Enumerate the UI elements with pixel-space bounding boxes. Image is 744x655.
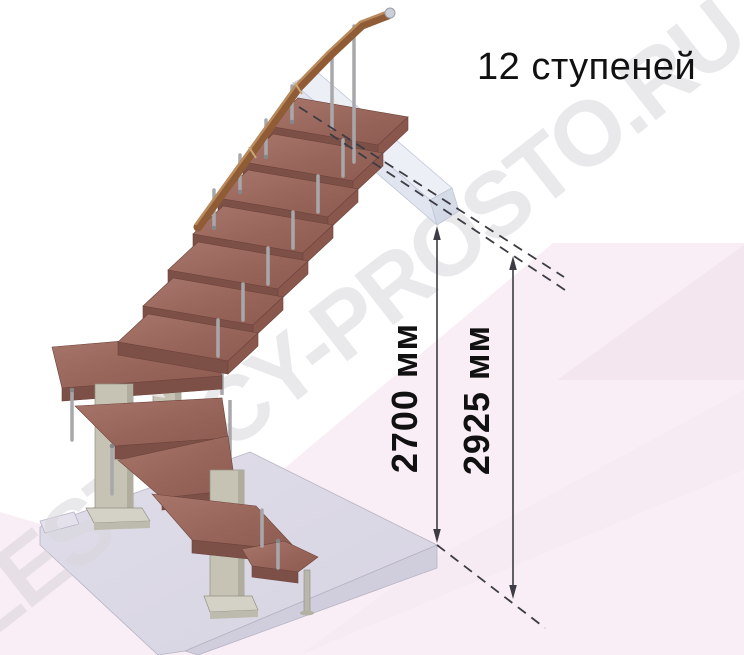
staircase-diagram-page: LESTNICY-PROSTO.RU xyxy=(0,0,744,655)
steps-count-label: 12 ступеней xyxy=(477,45,696,89)
column-base-plate xyxy=(86,508,150,523)
floor-post xyxy=(304,570,310,612)
baluster-joint xyxy=(276,539,281,544)
staircase-diagram: LESTNICY-PROSTO.RU xyxy=(0,0,744,655)
dimension-clear-height-label: 2700 мм xyxy=(384,323,425,473)
baluster-joint xyxy=(290,120,295,125)
dimension-total-height-label: 2925 мм xyxy=(456,325,497,475)
floor-post-base xyxy=(300,611,314,616)
baluster-joint xyxy=(110,444,115,449)
baluster-joint xyxy=(212,226,217,231)
handrail-cap xyxy=(385,8,395,18)
column-base-plate xyxy=(204,596,258,612)
baluster-joint xyxy=(264,155,269,160)
baluster-joint xyxy=(238,190,243,195)
baluster-joint xyxy=(70,388,75,393)
